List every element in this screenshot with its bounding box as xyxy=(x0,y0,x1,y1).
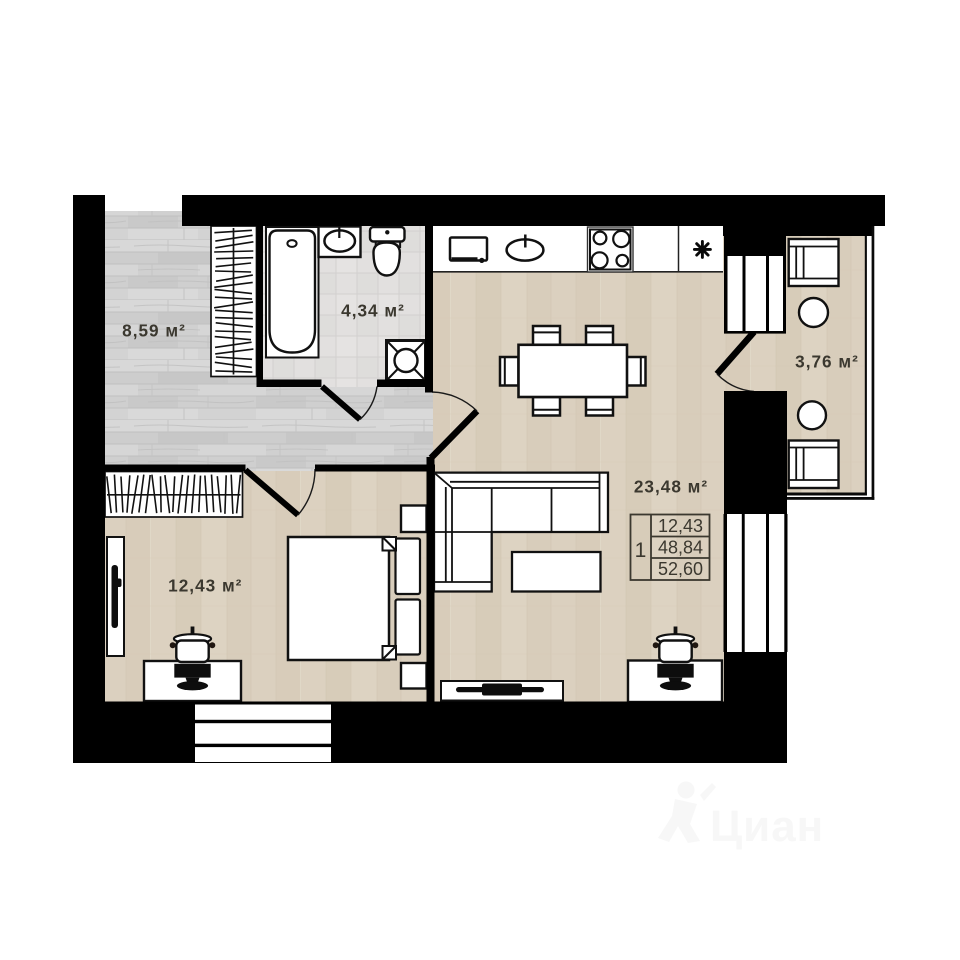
svg-text:4,34 м²: 4,34 м² xyxy=(341,301,405,321)
svg-text:Циан: Циан xyxy=(710,802,824,851)
svg-text:12,43 м²: 12,43 м² xyxy=(168,576,242,596)
svg-text:8,59 м²: 8,59 м² xyxy=(122,321,186,341)
svg-text:12,43: 12,43 xyxy=(658,516,703,536)
svg-text:48,84: 48,84 xyxy=(658,538,703,558)
svg-text:23,48 м²: 23,48 м² xyxy=(634,477,708,497)
svg-text:1: 1 xyxy=(635,539,647,562)
svg-text:52,60: 52,60 xyxy=(658,559,703,579)
svg-text:3,76 м²: 3,76 м² xyxy=(795,352,859,372)
